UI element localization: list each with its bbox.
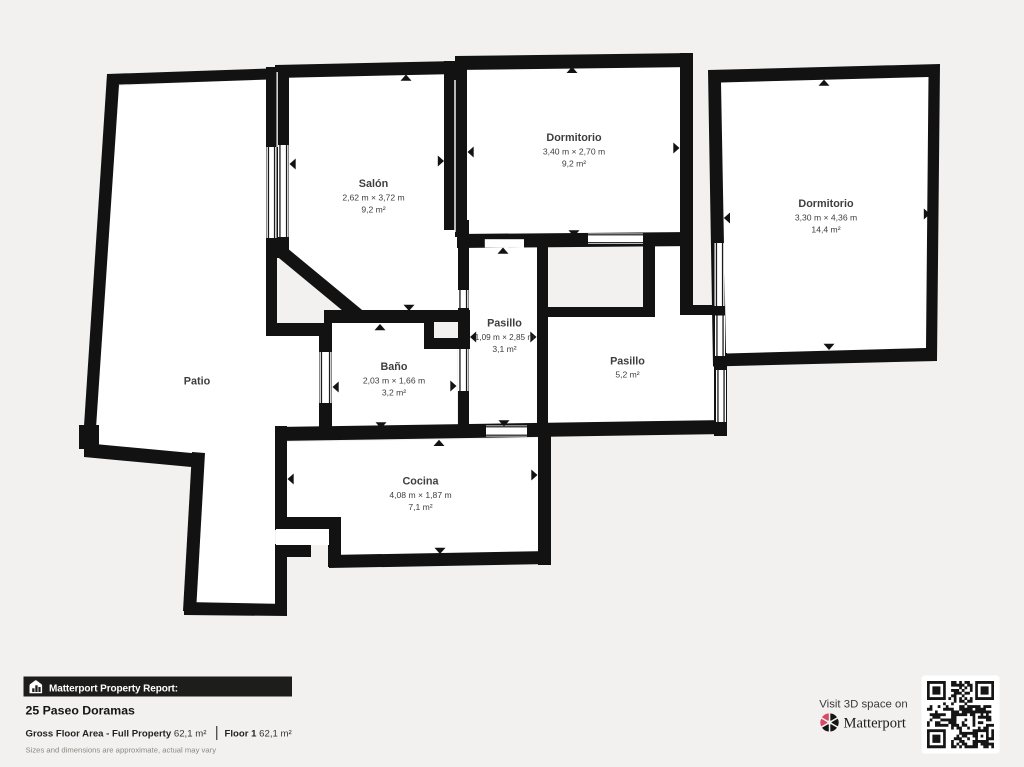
svg-text:Floor 1 62,1 m²: Floor 1 62,1 m²: [225, 728, 293, 739]
svg-text:14,4 m²: 14,4 m²: [811, 225, 840, 235]
svg-text:2,62 m × 3,72 m: 2,62 m × 3,72 m: [342, 193, 404, 203]
svg-text:2,03 m × 1,66 m: 2,03 m × 1,66 m: [363, 376, 425, 386]
svg-text:3,1 m²: 3,1 m²: [492, 344, 516, 354]
svg-text:Dormitorio: Dormitorio: [798, 198, 854, 210]
svg-text:1,09 m × 2,85 m: 1,09 m × 2,85 m: [475, 333, 535, 342]
svg-text:Pasillo: Pasillo: [610, 356, 645, 368]
svg-text:4,08 m × 1,87 m: 4,08 m × 1,87 m: [389, 490, 451, 500]
svg-text:Gross Floor Area - Full Proper: Gross Floor Area - Full Property 62,1 m²: [26, 728, 208, 739]
svg-text:Visit 3D space on: Visit 3D space on: [819, 699, 907, 711]
svg-text:Matterport Property Report:: Matterport Property Report:: [49, 683, 178, 694]
svg-text:9,2 m²: 9,2 m²: [562, 159, 586, 169]
svg-text:3,30 m × 4,36 m: 3,30 m × 4,36 m: [795, 213, 857, 223]
svg-text:Dormitorio: Dormitorio: [546, 132, 602, 144]
svg-text:Patio: Patio: [184, 375, 211, 387]
svg-text:Cocina: Cocina: [403, 476, 440, 488]
svg-text:9,2 m²: 9,2 m²: [361, 205, 385, 215]
svg-text:7,1 m²: 7,1 m²: [408, 502, 432, 512]
svg-text:3,2 m²: 3,2 m²: [382, 388, 406, 398]
svg-text:5,2 m²: 5,2 m²: [615, 370, 639, 380]
svg-text:Salón: Salón: [359, 178, 388, 190]
svg-text:3,40 m × 2,70 m: 3,40 m × 2,70 m: [543, 147, 605, 157]
svg-text:Baño: Baño: [381, 361, 408, 373]
svg-text:Sizes and dimensions are appro: Sizes and dimensions are approximate, ac…: [26, 746, 217, 755]
svg-text:Matterport: Matterport: [844, 716, 906, 732]
svg-text:25 Paseo Doramas: 25 Paseo Doramas: [26, 703, 136, 717]
svg-text:Pasillo: Pasillo: [487, 318, 522, 330]
